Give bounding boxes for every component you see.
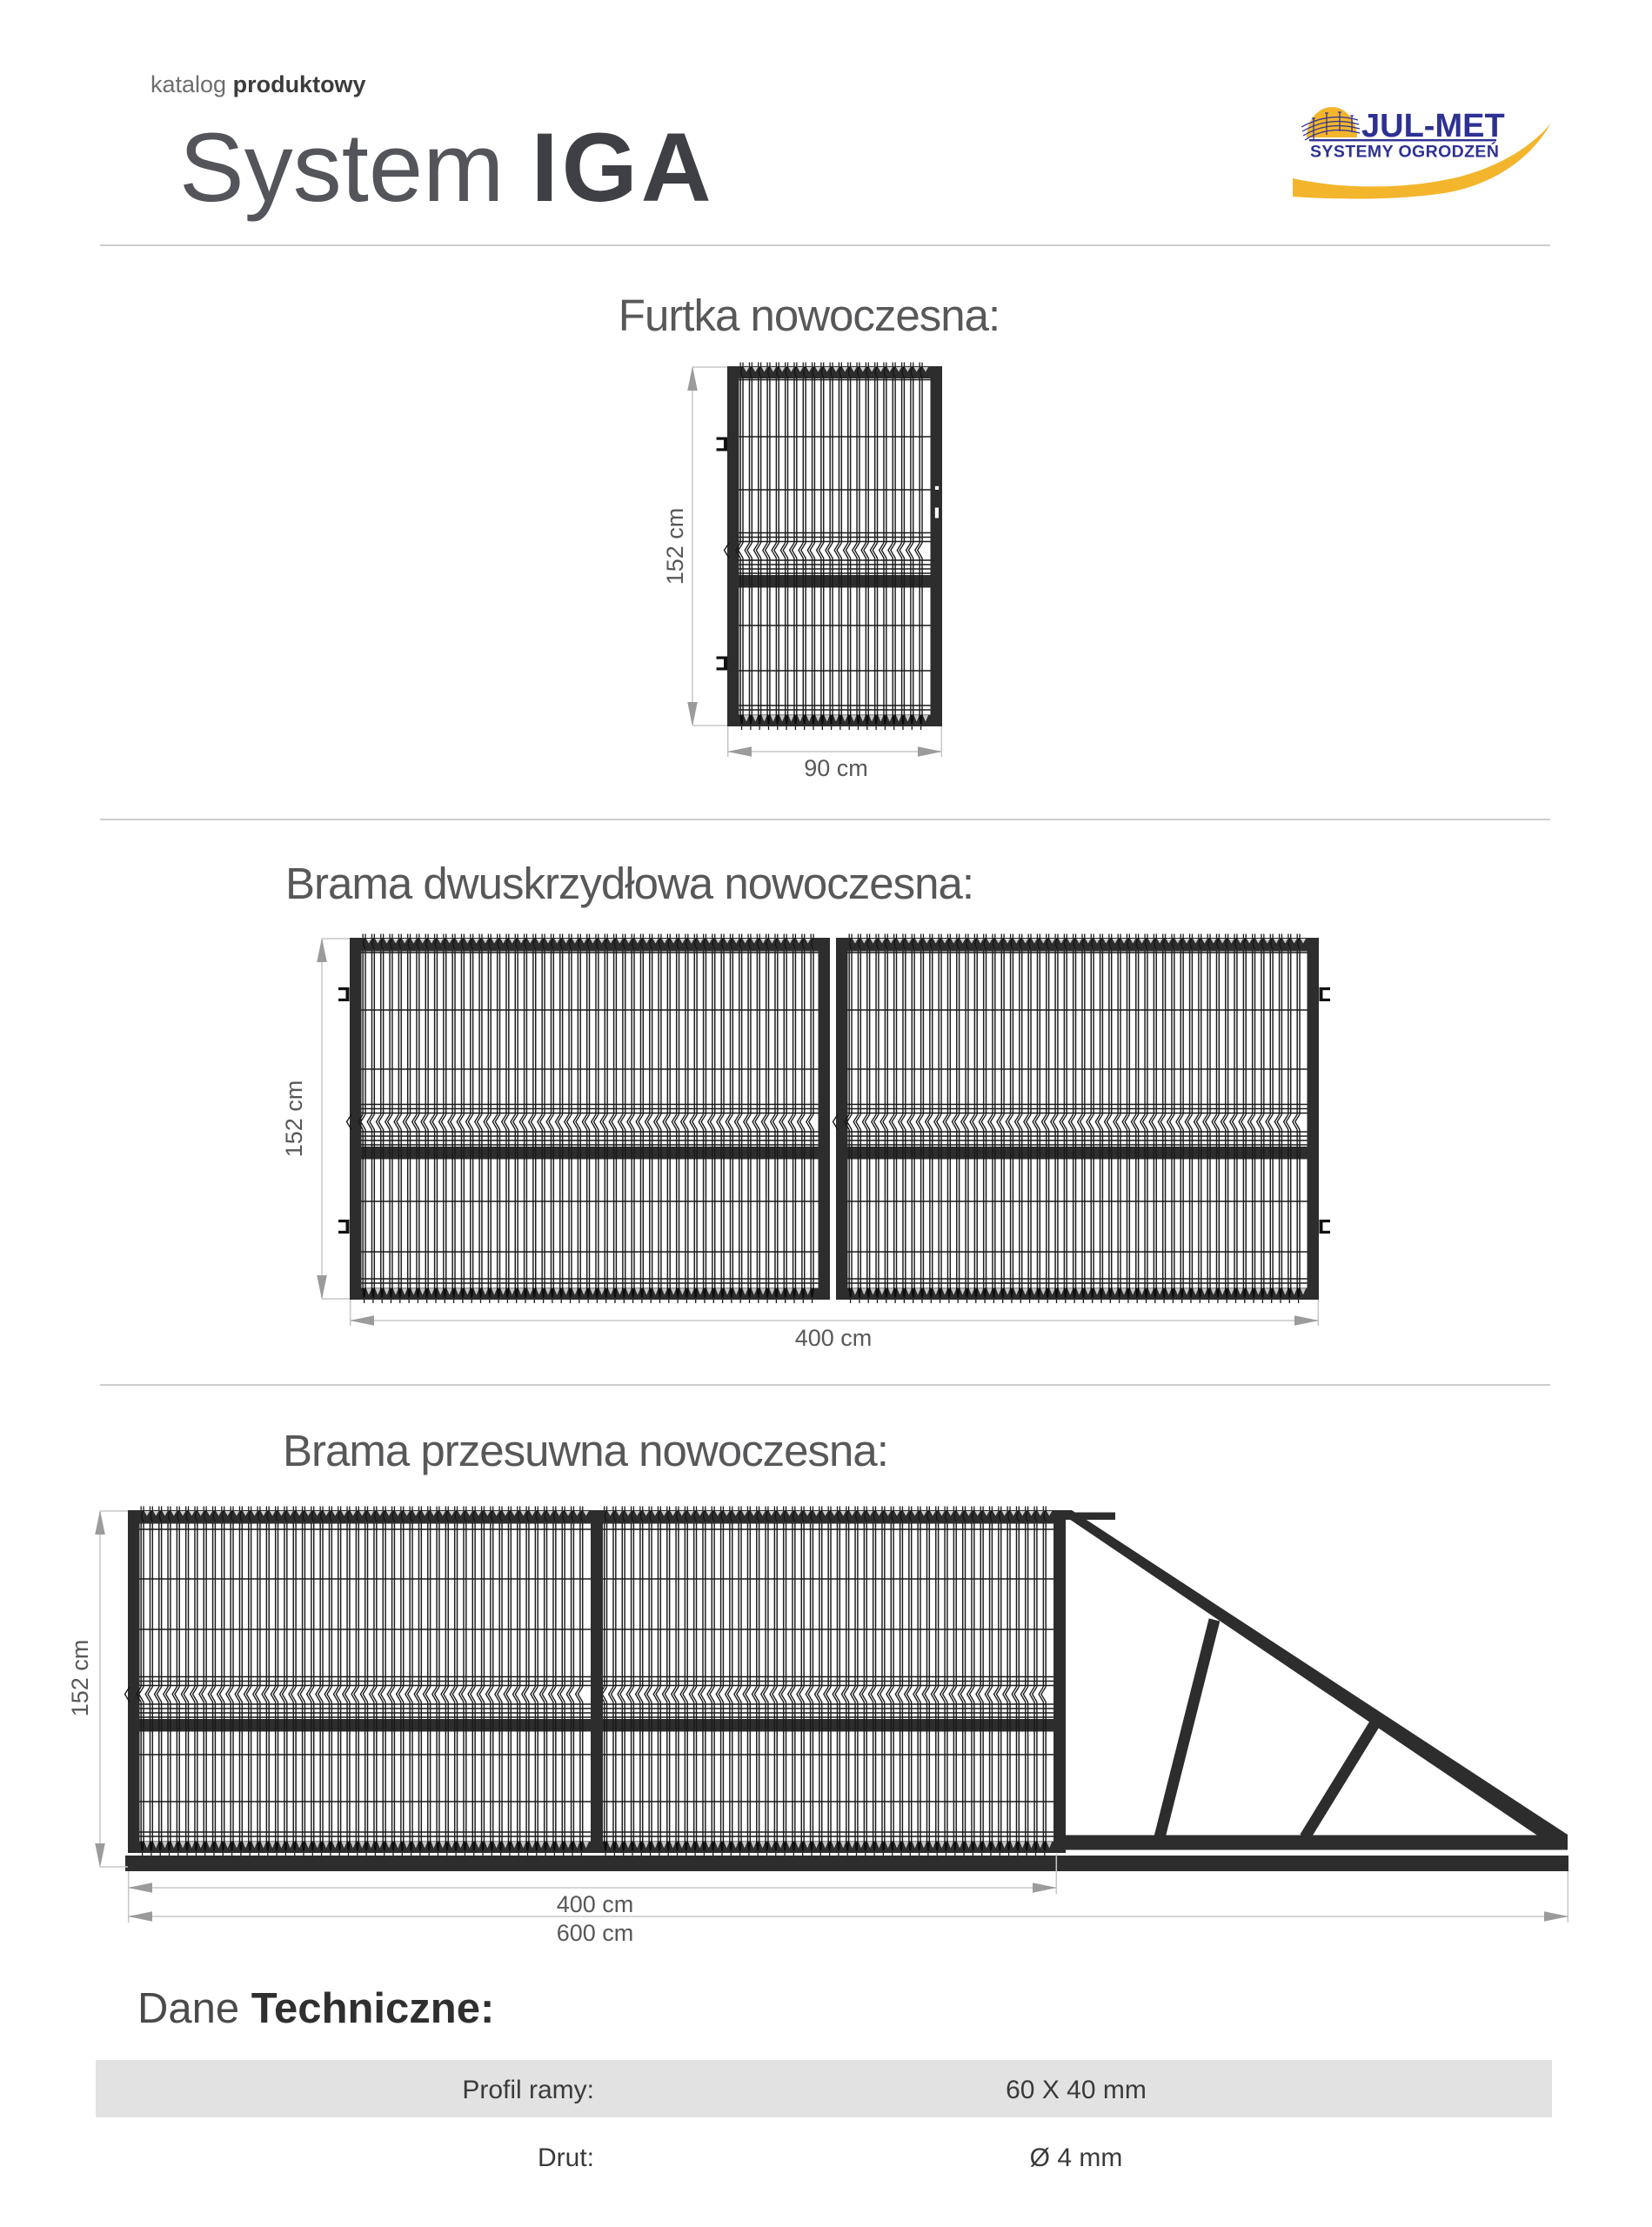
- svg-text:152 cm: 152 cm: [662, 508, 688, 585]
- svg-text:90 cm: 90 cm: [804, 755, 868, 781]
- svg-text:152 cm: 152 cm: [67, 1640, 93, 1717]
- svg-text:400 cm: 400 cm: [557, 1891, 634, 1917]
- svg-text:400 cm: 400 cm: [795, 1325, 873, 1351]
- svg-text:600 cm: 600 cm: [557, 1920, 634, 1946]
- svg-text:152 cm: 152 cm: [281, 1080, 307, 1158]
